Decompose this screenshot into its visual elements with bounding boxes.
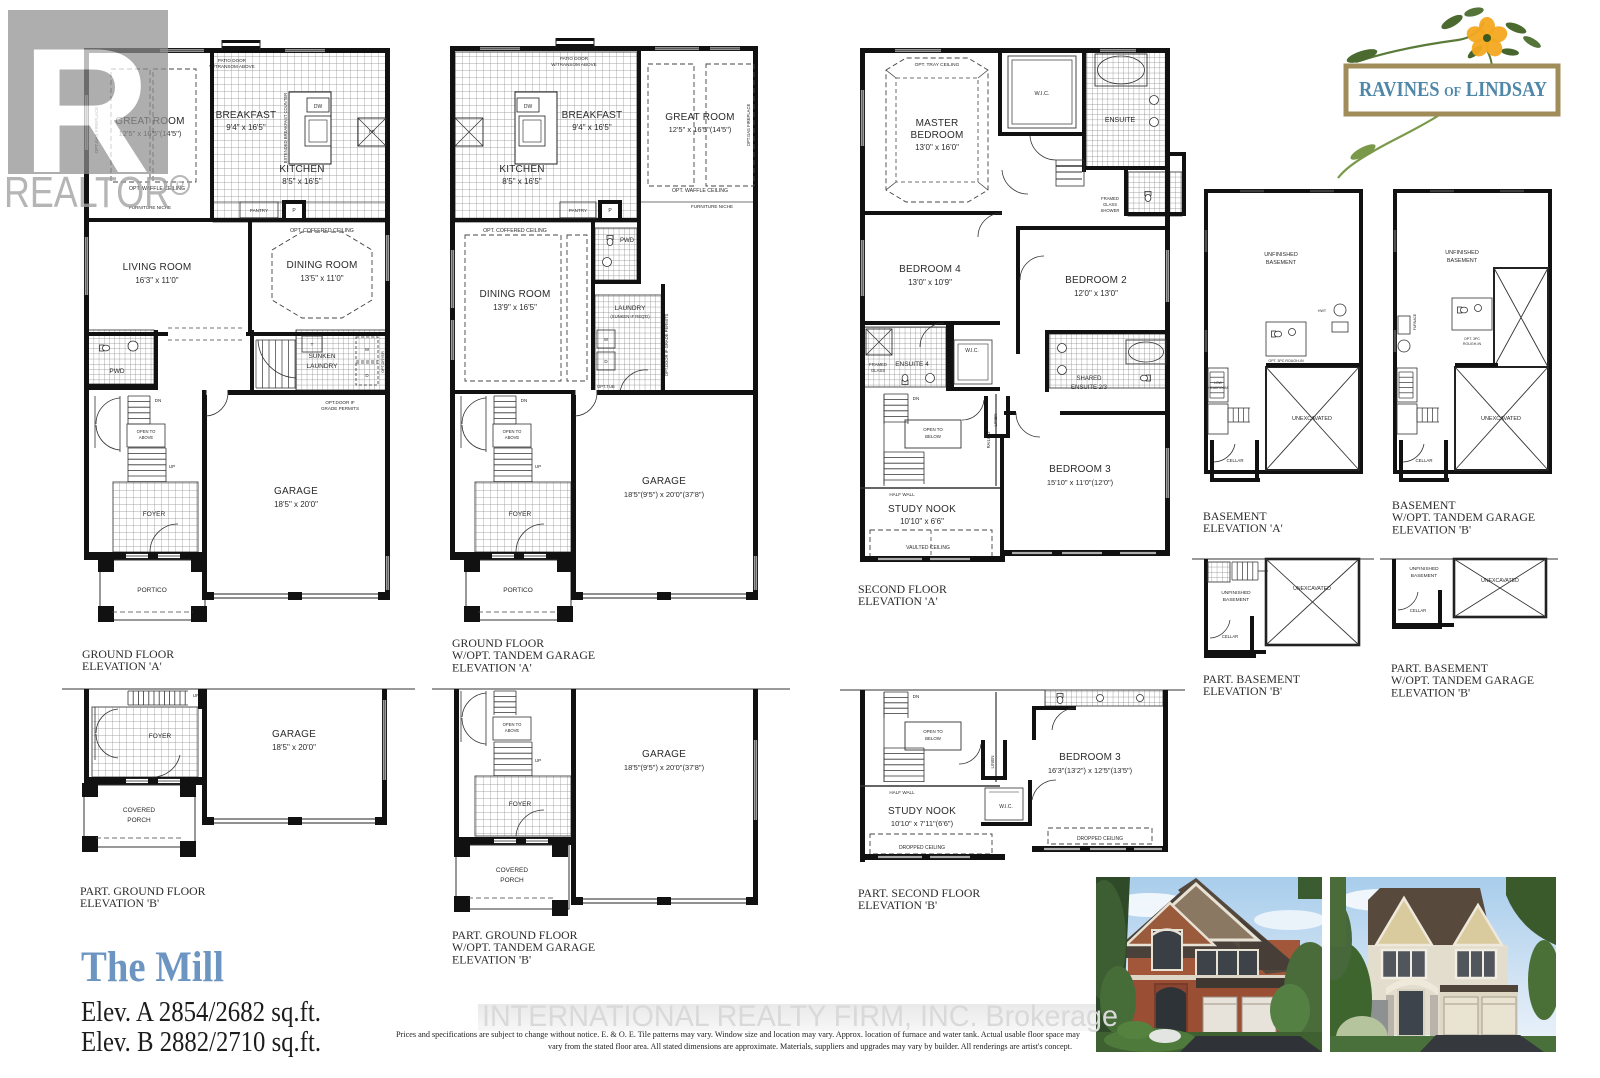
svg-text:HALF WALL: HALF WALL: [889, 790, 915, 795]
svg-text:DINING ROOM: DINING ROOM: [286, 260, 357, 271]
svg-text:UNEXCAVATED: UNEXCAVATED: [1481, 416, 1521, 422]
svg-text:10'10" x 6'6": 10'10" x 6'6": [900, 517, 944, 526]
svg-text:BREAKFAST: BREAKFAST: [562, 110, 623, 121]
svg-text:ELEVATION 'A': ELEVATION 'A': [82, 659, 162, 673]
svg-text:OPEN TO: OPEN TO: [503, 429, 522, 434]
svg-text:DN: DN: [155, 398, 162, 403]
svg-text:BELOW: BELOW: [925, 434, 942, 439]
svg-text:SUNKEN: SUNKEN: [308, 353, 335, 360]
svg-text:GARAGE: GARAGE: [642, 476, 686, 487]
svg-text:W.I.C.: W.I.C.: [1035, 91, 1050, 97]
svg-text:GARAGE: GARAGE: [272, 729, 316, 740]
svg-text:UNFINISHED: UNFINISHED: [1221, 590, 1251, 596]
svg-text:BEDROOM 2: BEDROOM 2: [1065, 275, 1127, 286]
svg-text:STUDY NOOK: STUDY NOOK: [888, 504, 956, 515]
svg-text:OPT. COFFERED CEILING: OPT. COFFERED CEILING: [483, 228, 547, 234]
svg-text:12'5" x 16'5"(14'5"): 12'5" x 16'5"(14'5"): [669, 125, 732, 134]
svg-text:W.I.C.: W.I.C.: [999, 804, 1013, 810]
svg-text:Prices and specifications are: Prices and specifications are subject to…: [396, 1030, 1080, 1039]
svg-text:HALF WALL: HALF WALL: [889, 492, 915, 497]
svg-text:UP: UP: [169, 464, 175, 469]
svg-text:16'3"(13'2") x 12'5"(13'5"): 16'3"(13'2") x 12'5"(13'5"): [1048, 766, 1133, 775]
svg-text:ABOVE: ABOVE: [505, 435, 520, 440]
svg-text:Elev. A 2854/2682 sq.ft.: Elev. A 2854/2682 sq.ft.: [81, 997, 321, 1028]
svg-text:OPT.DRYER: OPT.DRYER: [381, 351, 385, 373]
svg-text:OPEN TO: OPEN TO: [503, 722, 522, 727]
svg-text:FRAMED: FRAMED: [869, 362, 887, 367]
svg-text:DROPPED CEILING: DROPPED CEILING: [899, 845, 945, 851]
svg-text:FRAMED: FRAMED: [1101, 196, 1119, 201]
svg-text:DROPPED CEILING: DROPPED CEILING: [1077, 836, 1123, 842]
svg-text:GLASS: GLASS: [1103, 202, 1117, 207]
svg-text:UP: UP: [535, 464, 541, 469]
svg-text:ENSUITE 2/3: ENSUITE 2/3: [1071, 385, 1108, 391]
svg-text:ELEVATION 'A': ELEVATION 'A': [452, 660, 532, 674]
svg-text:MASTER: MASTER: [916, 118, 959, 129]
svg-text:DW: DW: [524, 104, 533, 110]
svg-text:(SUNKEN IF REQ'D): (SUNKEN IF REQ'D): [610, 314, 650, 319]
svg-text:ELEVATION 'A': ELEVATION 'A': [1203, 521, 1283, 535]
svg-text:BELOW: BELOW: [925, 736, 942, 741]
svg-text:OPT.TUB: OPT.TUB: [597, 384, 615, 389]
svg-text:ROUGH-IN: ROUGH-IN: [1463, 342, 1482, 346]
svg-text:T: T: [311, 342, 314, 347]
svg-text:LINEN: LINEN: [993, 414, 998, 427]
svg-text:OPEN TO: OPEN TO: [923, 427, 943, 432]
svg-text:FURNACE: FURNACE: [1413, 313, 1417, 330]
svg-text:W/TRANSOM ABOVE: W/TRANSOM ABOVE: [551, 62, 596, 67]
svg-text:PANTRY: PANTRY: [250, 208, 268, 213]
svg-text:LAUNDRY: LAUNDRY: [307, 363, 339, 370]
svg-text:ELEVATION 'A': ELEVATION 'A': [858, 594, 938, 608]
svg-text:DN: DN: [913, 396, 920, 401]
svg-text:ENSUITE: ENSUITE: [1105, 117, 1136, 124]
svg-text:9'4" x 16'5": 9'4" x 16'5": [572, 123, 612, 132]
svg-text:R: R: [176, 179, 185, 193]
svg-text:PORCH: PORCH: [127, 817, 151, 824]
svg-text:DN: DN: [521, 398, 528, 403]
svg-text:18'5" x 20'0": 18'5" x 20'0": [272, 743, 316, 752]
svg-text:BASEMENT: BASEMENT: [1447, 258, 1478, 264]
svg-text:GARAGE: GARAGE: [642, 749, 686, 760]
svg-text:OPT. 3PC: OPT. 3PC: [1464, 337, 1480, 341]
svg-text:COVERED: COVERED: [123, 807, 155, 814]
svg-text:BEDROOM 4: BEDROOM 4: [899, 264, 961, 275]
svg-text:OPT.DOOR IF: OPT.DOOR IF: [325, 400, 355, 405]
svg-text:BASEMENT: BASEMENT: [1223, 597, 1249, 603]
svg-text:The Mill: The Mill: [81, 944, 224, 991]
svg-text:13'0" x 16'0": 13'0" x 16'0": [915, 143, 959, 152]
svg-text:UNEXCAVATED: UNEXCAVATED: [1292, 416, 1332, 422]
svg-text:UNEXCAVATED: UNEXCAVATED: [1293, 586, 1331, 592]
svg-text:COVERED: COVERED: [496, 867, 528, 874]
svg-text:13'5" x 11'0": 13'5" x 11'0": [300, 274, 343, 283]
svg-text:FOYER: FOYER: [149, 733, 172, 740]
svg-text:UNFINISHED: UNFINISHED: [1264, 252, 1298, 258]
svg-text:PORTICO: PORTICO: [503, 587, 533, 594]
svg-text:OPT.DOOR IF GRADE PERMITS: OPT.DOOR IF GRADE PERMITS: [664, 314, 669, 377]
svg-text:FOYER: FOYER: [143, 511, 166, 518]
svg-text:13'9" x 16'5": 13'9" x 16'5": [493, 303, 537, 312]
svg-text:GREAT ROOM: GREAT ROOM: [665, 112, 734, 123]
svg-text:EXTENDED BREAKFAST COUNTER: EXTENDED BREAKFAST COUNTER: [283, 93, 288, 163]
svg-text:OPT.GAS FIREPLACE: OPT.GAS FIREPLACE: [746, 104, 751, 147]
svg-text:ABOVE: ABOVE: [505, 728, 520, 733]
svg-text:OPT. WAFFLE CEILING: OPT. WAFFLE CEILING: [672, 188, 728, 194]
svg-text:W.I.C.: W.I.C.: [965, 348, 979, 354]
svg-text:VAULTED CEILING: VAULTED CEILING: [906, 545, 950, 551]
svg-text:DN: DN: [913, 694, 920, 699]
svg-text:ABOVE: ABOVE: [139, 435, 154, 440]
svg-text:ELEVATION 'B': ELEVATION 'B': [1391, 685, 1470, 699]
svg-text:LAUNDRY: LAUNDRY: [615, 305, 647, 312]
svg-text:OPEN TO: OPEN TO: [923, 729, 943, 734]
svg-text:OPEN TO: OPEN TO: [137, 429, 156, 434]
svg-text:CELLAR: CELLAR: [1226, 458, 1243, 463]
svg-text:ENSUITE 4: ENSUITE 4: [895, 361, 929, 368]
svg-text:GLASS: GLASS: [871, 368, 885, 373]
svg-text:PATIO DOOR: PATIO DOOR: [560, 56, 589, 61]
svg-text:BASEMENT: BASEMENT: [1411, 573, 1437, 579]
svg-text:GRADE PERMITS: GRADE PERMITS: [321, 406, 359, 411]
svg-text:BEDROOM: BEDROOM: [910, 130, 963, 141]
svg-text:15'10" x 11'0"(12'0"): 15'10" x 11'0"(12'0"): [1047, 478, 1114, 487]
svg-text:GARAGE: GARAGE: [274, 486, 318, 497]
svg-text:PATIO DOOR: PATIO DOOR: [218, 58, 247, 63]
svg-text:REALTOR: REALTOR: [4, 168, 170, 217]
svg-text:HWT: HWT: [1318, 309, 1327, 313]
svg-text:DW: DW: [314, 104, 323, 110]
svg-text:ELEVATION 'B': ELEVATION 'B': [1392, 522, 1471, 536]
svg-text:CELLAR: CELLAR: [1410, 608, 1426, 613]
svg-text:BEDROOM 3: BEDROOM 3: [1059, 752, 1121, 763]
svg-text:18'5" x 20'0": 18'5" x 20'0": [274, 500, 318, 509]
svg-text:8'5" x 16'5": 8'5" x 16'5": [282, 177, 322, 186]
svg-text:ELEVATION 'B': ELEVATION 'B': [858, 898, 937, 912]
svg-text:OPT. 3PC ROUGH-IN: OPT. 3PC ROUGH-IN: [1268, 359, 1304, 363]
svg-text:INTERNATIONAL REALTY FIRM, IN: INTERNATIONAL REALTY FIRM, INC. Brokerag…: [482, 1000, 1118, 1033]
svg-text:OPT. TRAY CEILING: OPT. TRAY CEILING: [915, 62, 960, 68]
svg-text:ELEVATION 'B': ELEVATION 'B': [452, 952, 531, 966]
svg-text:SHOWER: SHOWER: [1101, 208, 1120, 213]
svg-text:16'3" x 11'0": 16'3" x 11'0": [135, 276, 178, 285]
svg-text:10'10" x 7'11"(6'6"): 10'10" x 7'11"(6'6"): [891, 819, 954, 828]
svg-text:12'0" x 13'0": 12'0" x 13'0": [1074, 289, 1118, 298]
svg-text:BEDROOM 3: BEDROOM 3: [1049, 464, 1111, 475]
svg-text:Elev. B 2882/2710 sq.ft.: Elev. B 2882/2710 sq.ft.: [81, 1027, 321, 1058]
svg-text:PORTICO: PORTICO: [137, 587, 167, 594]
svg-text:UNFINISHED: UNFINISHED: [1409, 566, 1439, 572]
svg-text:FURNITURE NICHE: FURNITURE NICHE: [691, 204, 733, 209]
svg-text:13'0" x 10'9": 13'0" x 10'9": [908, 278, 952, 287]
svg-text:PWD: PWD: [620, 238, 635, 244]
svg-text:BASEMENT: BASEMENT: [1266, 260, 1297, 266]
svg-text:STUDY NOOK: STUDY NOOK: [888, 806, 956, 817]
svg-text:PANTRY: PANTRY: [569, 208, 587, 213]
svg-text:FOYER: FOYER: [509, 801, 532, 808]
svg-text:CELLAR: CELLAR: [1415, 458, 1432, 463]
svg-text:UNFINISHED: UNFINISHED: [1445, 250, 1479, 256]
svg-text:18'5"(9'5") x 20'0"(37'8"): 18'5"(9'5") x 20'0"(37'8"): [624, 763, 705, 772]
svg-text:LINEN: LINEN: [990, 756, 995, 769]
svg-text:KITCHEN: KITCHEN: [279, 164, 324, 175]
svg-text:FOYER: FOYER: [509, 511, 532, 518]
svg-text:SHARED: SHARED: [1076, 376, 1102, 382]
svg-text:LOW: LOW: [1214, 381, 1223, 385]
svg-text:UP: UP: [535, 758, 541, 763]
svg-text:8'5" x 16'5": 8'5" x 16'5": [502, 177, 542, 186]
svg-text:BREAKFAST: BREAKFAST: [216, 110, 277, 121]
svg-text:LIVING ROOM: LIVING ROOM: [123, 262, 192, 273]
svg-text:PWD: PWD: [109, 368, 124, 375]
svg-text:vary from the stated floor are: vary from the stated floor area. All sta…: [548, 1042, 1072, 1051]
svg-text:W/TRANSOM ABOVE: W/TRANSOM ABOVE: [209, 64, 254, 69]
svg-text:HEADROOM: HEADROOM: [1208, 386, 1228, 390]
svg-text:DINING ROOM: DINING ROOM: [479, 289, 550, 300]
svg-text:UNEXCAVATED: UNEXCAVATED: [1481, 578, 1519, 584]
svg-text:9'4" x 16'5": 9'4" x 16'5": [226, 123, 266, 132]
svg-text:FR: FR: [369, 129, 376, 134]
svg-text:KITCHEN: KITCHEN: [499, 164, 544, 175]
svg-text:PORCH: PORCH: [500, 877, 524, 884]
svg-text:18'5"(9'5") x 20'0"(37'8"): 18'5"(9'5") x 20'0"(37'8"): [624, 490, 705, 499]
svg-text:ELEVATION 'B': ELEVATION 'B': [1203, 684, 1282, 698]
svg-text:ELEVATION 'B': ELEVATION 'B': [80, 896, 159, 910]
svg-text:CELLAR: CELLAR: [1222, 634, 1238, 639]
